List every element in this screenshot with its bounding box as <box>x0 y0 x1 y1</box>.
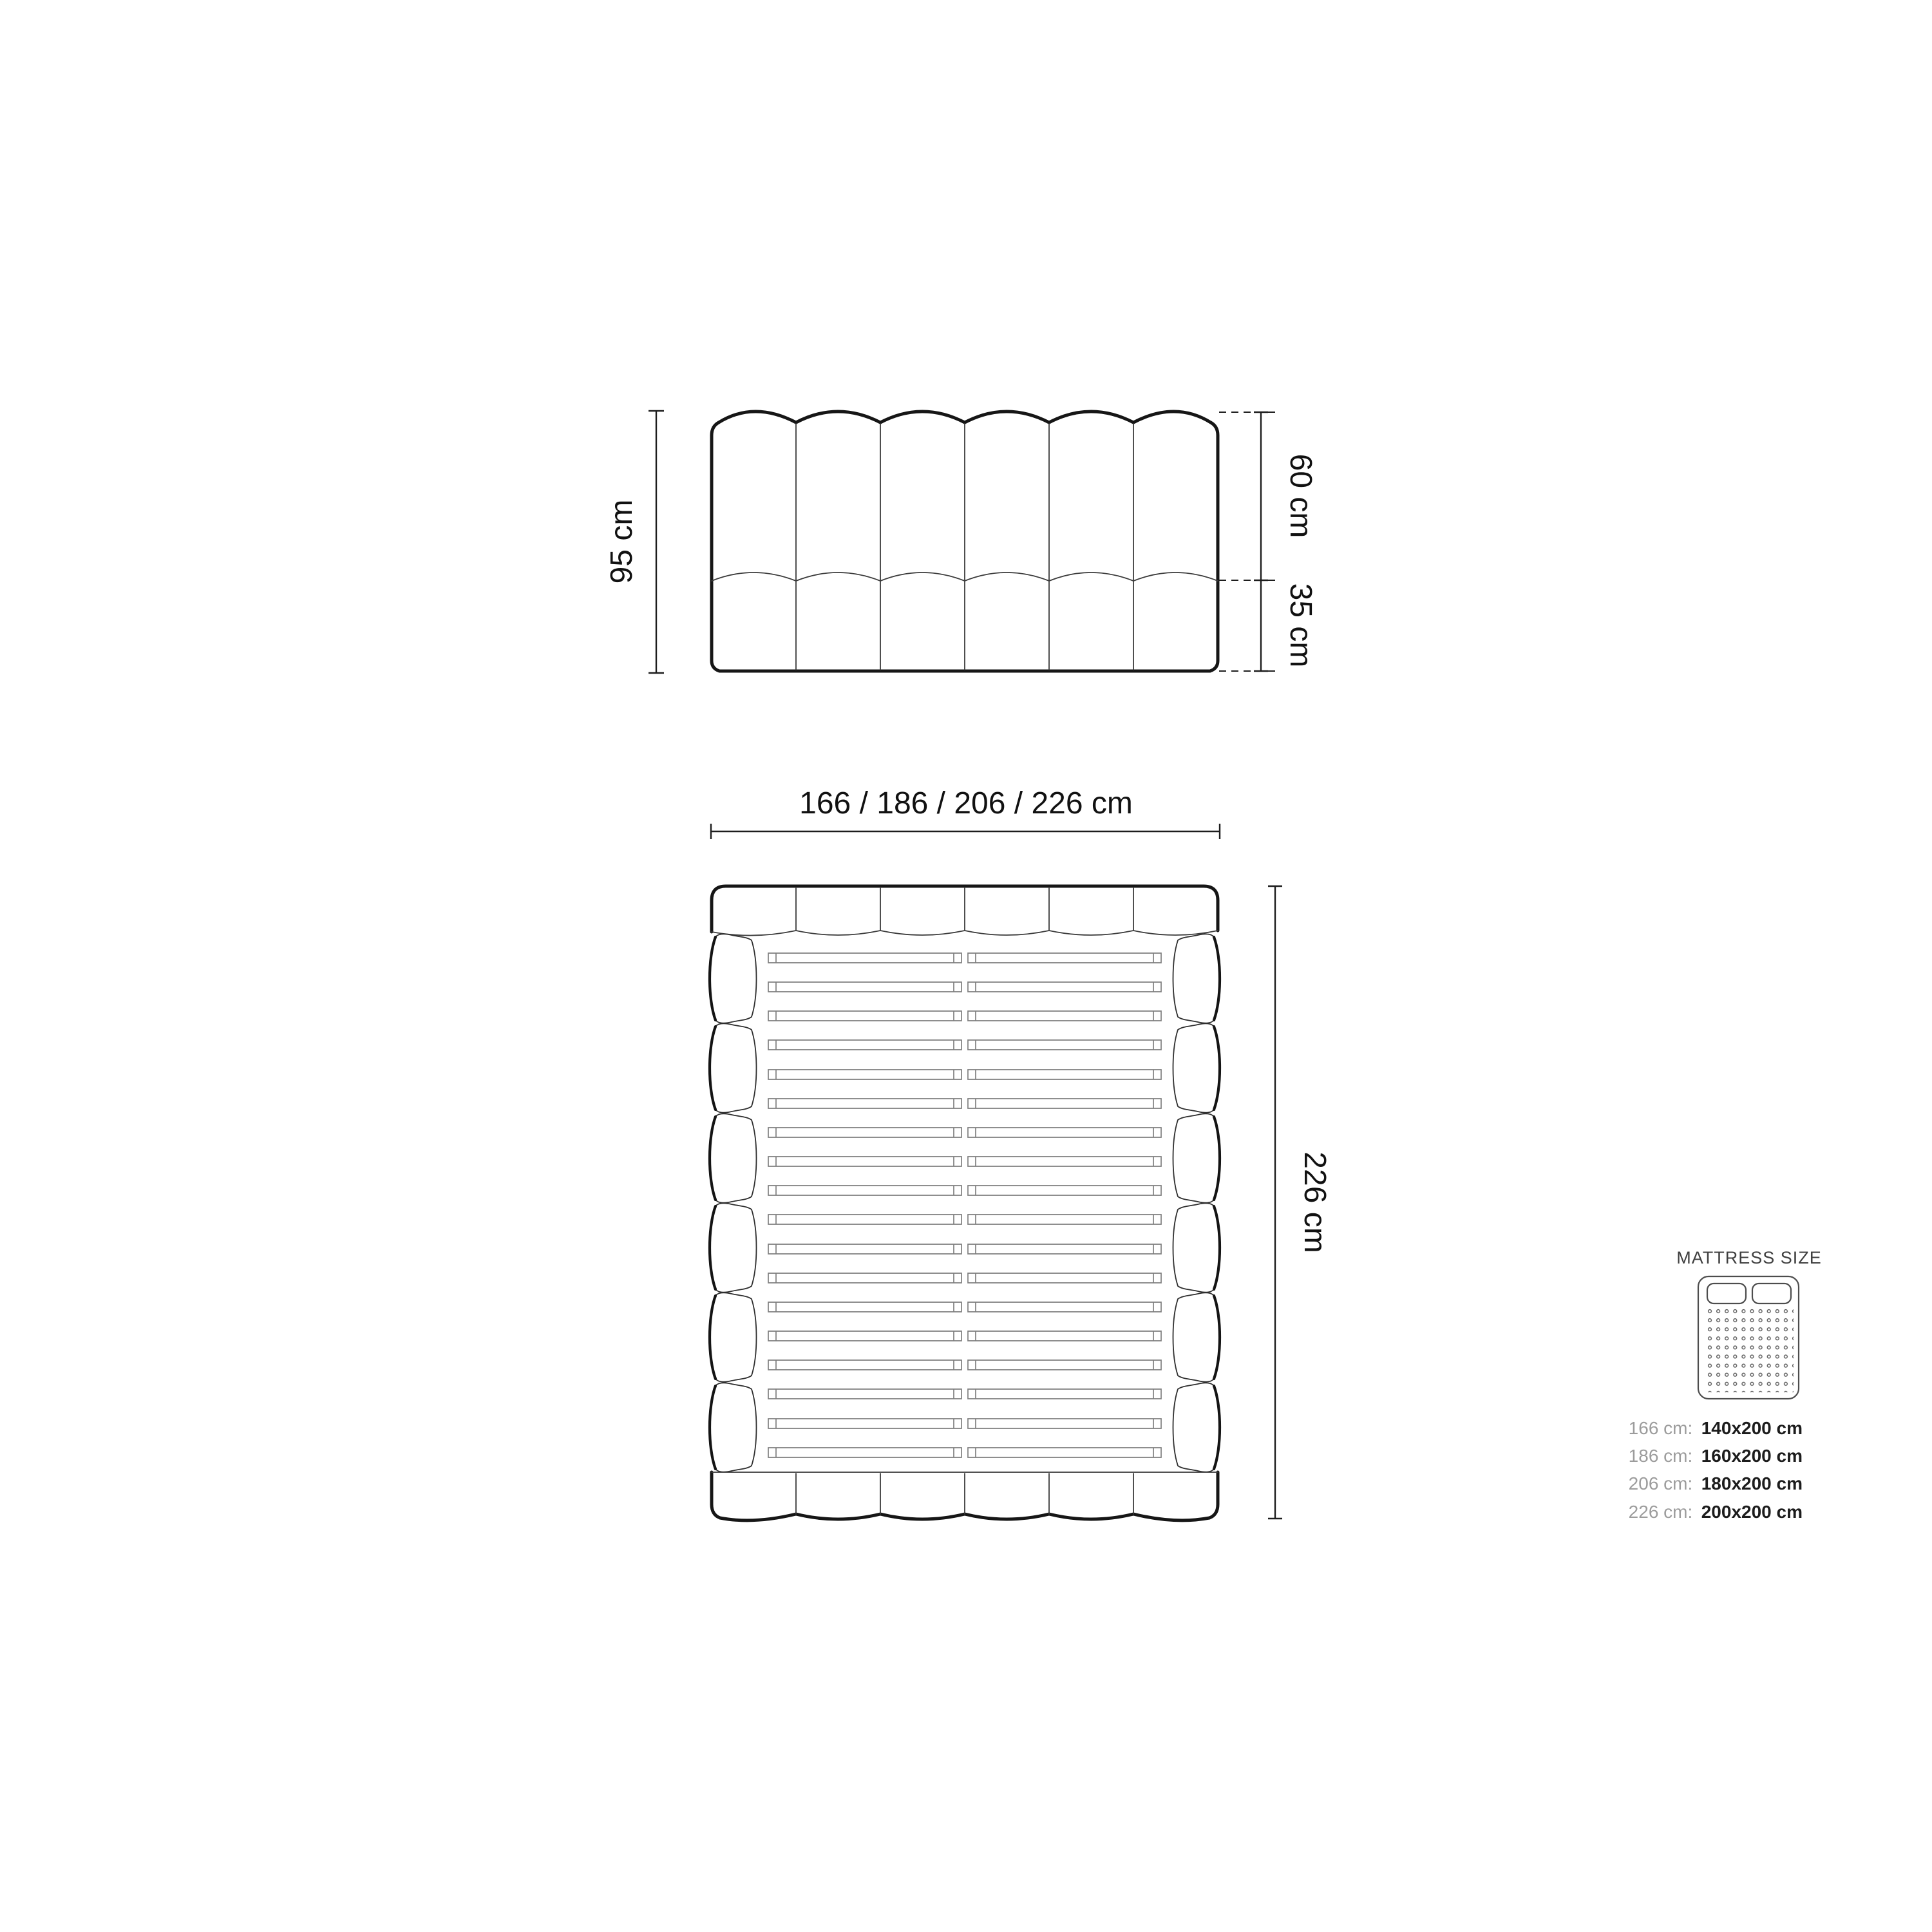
size-row-1: 166 cm: 140x200 cm <box>1629 1418 1803 1438</box>
size-row-4: 226 cm: 200x200 cm <box>1629 1502 1803 1522</box>
width-dimension: 166 / 186 / 206 / 226 cm <box>711 786 1220 839</box>
length-dimension: 226 cm <box>1268 886 1332 1519</box>
mattress-size-legend: MATTRESS SIZE 166 cm: 140x200 cm 186 cm:… <box>1629 1248 1822 1522</box>
upper-height-label: 60 cm <box>1283 454 1318 538</box>
top-view-footboard-bar <box>712 1472 1218 1520</box>
mattress-size-list: 166 cm: 140x200 cm 186 cm: 160x200 cm 20… <box>1629 1418 1803 1522</box>
pillow-left-icon <box>1707 1283 1746 1303</box>
diagram-svg: 95 cm 60 cm 35 cm 166 / 186 / 206 / 226 … <box>0 0 1932 1932</box>
front-split-height-dimension: 60 cm 35 cm <box>1219 412 1318 671</box>
size-row-3: 206 cm: 180x200 cm <box>1629 1473 1803 1493</box>
headboard-front-view <box>712 412 1218 671</box>
pillow-right-icon <box>1752 1283 1791 1303</box>
size-row-2: 186 cm: 160x200 cm <box>1629 1446 1803 1466</box>
legend-title: MATTRESS SIZE <box>1676 1248 1822 1267</box>
mattress-icon <box>1698 1276 1799 1399</box>
length-label: 226 cm <box>1298 1151 1332 1253</box>
left-side-rail <box>710 934 757 1472</box>
slat-base <box>768 953 1161 1457</box>
top-view-headboard-bar <box>712 886 1218 936</box>
tufting-dots <box>1707 1309 1794 1392</box>
lower-height-label: 35 cm <box>1283 583 1318 668</box>
front-total-height-dimension: 95 cm <box>605 411 664 673</box>
total-height-label: 95 cm <box>605 500 639 584</box>
right-side-rail <box>1173 934 1220 1472</box>
bed-dimensions-diagram: 95 cm 60 cm 35 cm 166 / 186 / 206 / 226 … <box>0 0 1932 1932</box>
width-options-label: 166 / 186 / 206 / 226 cm <box>799 786 1133 820</box>
bed-top-view <box>710 886 1220 1520</box>
